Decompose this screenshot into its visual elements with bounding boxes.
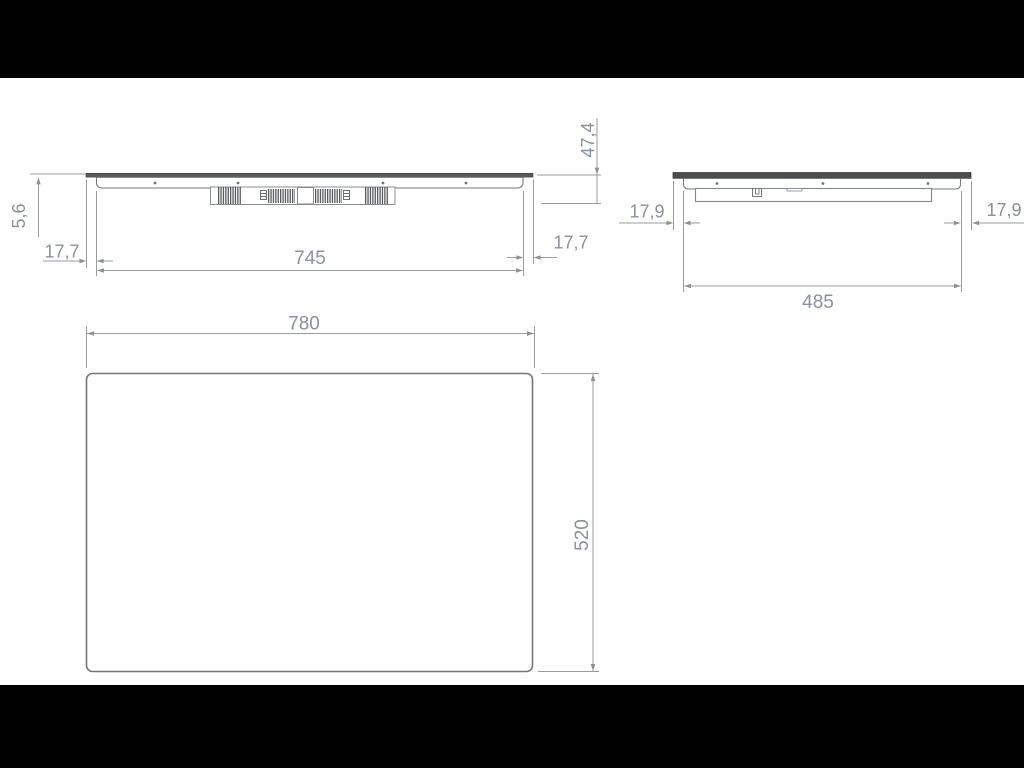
front-view <box>86 173 533 204</box>
dim-label-glass-width: 780 <box>288 314 320 335</box>
dim-label-front-left-inset: 17,7 <box>44 242 79 262</box>
dim-label-side-right-inset: 17,9 <box>986 200 1021 220</box>
dim-label-side-left-inset: 17,9 <box>629 202 664 222</box>
letterbox-top <box>0 0 1024 78</box>
side-glass-panel <box>673 173 971 179</box>
front-clip <box>261 191 267 200</box>
dim-label-body-width: 745 <box>294 248 326 269</box>
dim-label-front-right-inset: 17,7 <box>553 233 588 253</box>
side-view <box>673 173 971 202</box>
side-screw-dots <box>716 182 930 185</box>
front-body-frame <box>97 177 524 188</box>
side-lower-tub <box>696 189 932 202</box>
dim-side-body-depth: 485 <box>684 191 962 313</box>
side-vent-slot <box>787 189 802 192</box>
dim-front-glass-protrusion: 5,6 <box>9 174 86 237</box>
front-screw-dots <box>154 182 468 185</box>
dim-front-total-height: 47,4 <box>537 118 601 204</box>
dim-side-right-inset: 17,9 <box>944 181 1024 230</box>
dim-front-left-inset: 17,7 <box>43 180 113 277</box>
top-glass-outline <box>87 374 533 672</box>
dim-label-body-depth: 485 <box>802 292 834 313</box>
front-heatsink-assembly <box>211 187 396 205</box>
dim-label-total-height: 47,4 <box>578 122 598 157</box>
letterbox-bottom <box>0 685 1024 768</box>
top-view <box>87 374 533 672</box>
dim-label-glass-depth: 520 <box>572 519 593 551</box>
front-glass-panel <box>86 173 533 177</box>
dim-top-glass-width: 780 <box>87 314 535 369</box>
technical-drawing-canvas: 5,6 17,7 745 17,7 <box>0 0 1024 768</box>
front-center-box <box>298 188 314 205</box>
dim-front-right-inset: 17,7 <box>507 180 589 265</box>
dim-top-glass-depth: 520 <box>538 374 599 672</box>
dim-label-glass-protrusion: 5,6 <box>9 203 29 228</box>
dimension-drawing: 5,6 17,7 745 17,7 <box>0 0 1024 768</box>
front-clip <box>344 191 350 200</box>
dim-side-left-inset: 17,9 <box>619 181 700 292</box>
